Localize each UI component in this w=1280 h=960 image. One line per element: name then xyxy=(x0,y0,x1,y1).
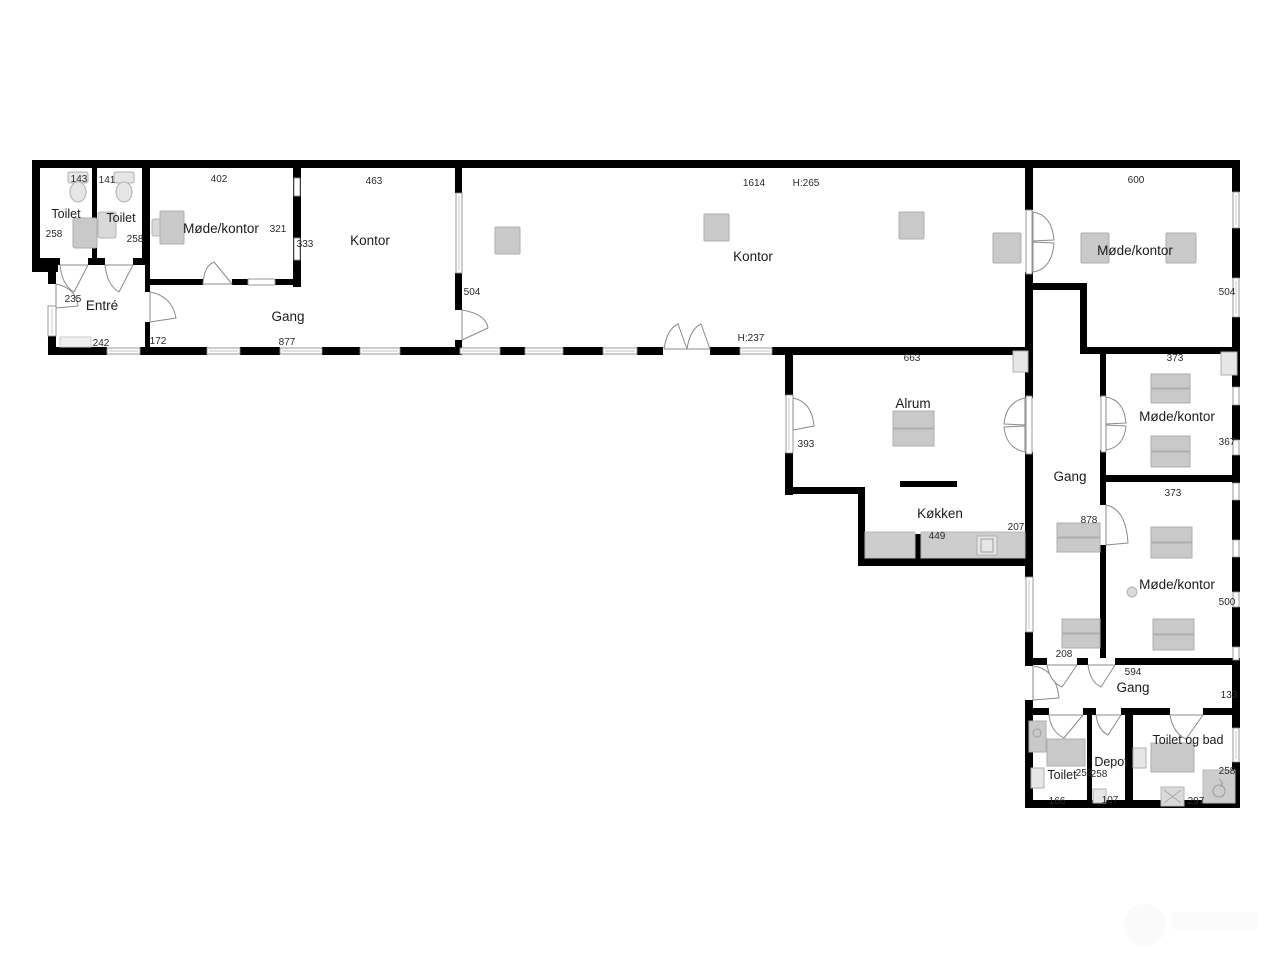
floor-drain xyxy=(1161,787,1184,806)
window xyxy=(1233,387,1239,405)
door-arc-alrum-gang-1 xyxy=(1004,398,1025,425)
door-arc-toilet-nw-right xyxy=(105,265,133,292)
room-label-kontor-west: Kontor xyxy=(350,233,390,248)
door-arc-kontor-divider xyxy=(462,310,488,340)
room-label-kontor-main: Kontor xyxy=(733,249,773,264)
door-arc-moede-nw xyxy=(203,262,232,284)
door-arc-ne-double-1 xyxy=(1033,212,1054,241)
dim-toilet-south-width: 166 xyxy=(1049,796,1066,807)
door-arc-kontor-south-2 xyxy=(687,324,710,349)
door-frame xyxy=(1026,210,1032,274)
conference-table xyxy=(1153,619,1194,650)
radiator xyxy=(1013,351,1028,372)
window xyxy=(740,348,772,354)
floor-plan-canvas: Toilet Toilet Entré Møde/kontor Kontor G… xyxy=(0,0,1280,960)
dim-toilet-og-bad-width: 297 xyxy=(1188,796,1205,807)
toilet-fixture xyxy=(114,172,134,202)
desk xyxy=(993,233,1021,263)
shower xyxy=(1029,721,1046,752)
dim-toilet-nw-left-depth: 258 xyxy=(46,229,63,240)
window xyxy=(786,395,793,453)
dim-kontor-main-ceiling: H:265 xyxy=(793,178,820,189)
conference-table xyxy=(1057,523,1100,552)
door-frame xyxy=(1026,396,1032,454)
furniture xyxy=(60,172,1237,806)
dim-entre-depth: 235 xyxy=(65,294,82,305)
desk xyxy=(495,227,520,254)
room-label-toilet-south: Toilet xyxy=(1047,768,1077,782)
floor-plan-svg: Toilet Toilet Entré Møde/kontor Kontor G… xyxy=(0,0,1280,960)
door-arc-room1-2 xyxy=(1106,425,1126,450)
dim-koekken-wall: 207 xyxy=(1008,522,1025,533)
door-arc-gang-south-2 xyxy=(1088,665,1115,687)
window xyxy=(1233,540,1239,557)
stool xyxy=(1127,587,1137,597)
window xyxy=(1233,728,1239,762)
door-arc-alrum-west xyxy=(793,398,814,430)
room-label-toilet-nw-right: Toilet xyxy=(106,211,136,225)
door-arc-ne-double-2 xyxy=(1033,242,1054,272)
door-arc-toilet-south xyxy=(1049,715,1083,738)
window xyxy=(280,348,322,354)
desk xyxy=(704,214,729,241)
room-label-koekken: Køkken xyxy=(917,506,963,521)
dim-moede-e2-wall: 500 xyxy=(1219,597,1236,608)
dim-gang-east-length: 878 xyxy=(1081,515,1098,526)
sink xyxy=(1047,739,1085,766)
door-arc-room2 xyxy=(1106,505,1128,545)
dim-alrum-width: 663 xyxy=(904,353,921,364)
dim-gang-south-width: 594 xyxy=(1125,667,1142,678)
kitchen-counter xyxy=(865,532,915,558)
dim-depot-depth: 258 xyxy=(1091,769,1108,780)
doormat xyxy=(60,337,91,347)
kitchen-sink xyxy=(977,536,997,555)
window xyxy=(1233,192,1239,228)
window xyxy=(456,193,462,273)
dim-kontor-west-width: 463 xyxy=(366,176,383,187)
dimension-labels: 143 258 141 258 235 242 402 321 333 463 … xyxy=(46,174,1238,807)
room-label-entre: Entré xyxy=(86,298,118,313)
conference-table xyxy=(1062,619,1100,648)
dim-kontor-west-wall: 504 xyxy=(464,287,481,298)
dim-gang-west-width: 877 xyxy=(279,337,296,348)
window xyxy=(460,348,500,354)
window xyxy=(248,279,275,285)
window xyxy=(1233,483,1239,500)
desk xyxy=(160,211,184,244)
dim-moede-ne-wall: 504 xyxy=(1219,287,1236,298)
dim-depot-width: 107 xyxy=(1102,795,1119,806)
room-label-alrum: Alrum xyxy=(895,396,930,411)
dim-gang-east-end: 208 xyxy=(1056,649,1073,660)
door-frame xyxy=(1101,396,1106,452)
dim-moede-nw-depth: 321 xyxy=(270,224,287,235)
dim-toilet-nw-left-width: 143 xyxy=(71,174,88,185)
room-label-gang-west: Gang xyxy=(271,309,304,324)
window xyxy=(603,348,637,354)
room-label-moede-e1: Møde/kontor xyxy=(1139,409,1215,424)
sink xyxy=(1151,743,1194,772)
door-arc-kontor-south-1 xyxy=(664,324,687,349)
dim-moede-e2-width: 373 xyxy=(1165,488,1182,499)
dim-gang-west-offset: 172 xyxy=(150,336,167,347)
window xyxy=(207,348,240,354)
dim-kontor-main-ceiling-s: H:237 xyxy=(738,333,765,344)
watermark xyxy=(1124,904,1258,946)
window xyxy=(107,348,140,354)
dim-moede-e1-width: 373 xyxy=(1167,353,1184,364)
dim-moede-e1-wall: 367 xyxy=(1219,437,1236,448)
dim-alrum-wall: 393 xyxy=(798,439,815,450)
walls xyxy=(32,160,1240,808)
door-arc-depot xyxy=(1096,715,1121,735)
dim-entre-width: 242 xyxy=(93,338,110,349)
window xyxy=(1026,577,1033,632)
window xyxy=(360,348,400,354)
dim-toilet-og-bad-depth: 258 xyxy=(1219,766,1236,777)
window xyxy=(525,348,563,354)
window xyxy=(1233,647,1239,660)
room-label-toilet-nw-left: Toilet xyxy=(51,207,81,221)
window xyxy=(294,178,300,196)
conference-table xyxy=(1151,374,1190,403)
room-label-moede-ne: Møde/kontor xyxy=(1097,243,1173,258)
radiator xyxy=(1221,352,1237,375)
dim-toilet-nw-right-depth: 258 xyxy=(127,234,144,245)
dim-moede-nw-width: 402 xyxy=(211,174,228,185)
dim-toilet-nw-right-width: 141 xyxy=(99,175,116,186)
desk xyxy=(899,212,924,239)
door-arc-room1-1 xyxy=(1106,397,1126,424)
dim-moede-ne-width: 600 xyxy=(1128,175,1145,186)
room-label-gang-east: Gang xyxy=(1053,469,1086,484)
dim-kontor-main-width: 1614 xyxy=(743,178,766,189)
room-label-gang-south: Gang xyxy=(1116,680,1149,695)
room-label-toilet-og-bad: Toilet og bad xyxy=(1153,733,1224,747)
sink xyxy=(73,218,97,248)
room-label-moede-e2: Møde/kontor xyxy=(1139,577,1215,592)
conference-table xyxy=(893,411,934,446)
toilet-fixture xyxy=(1133,748,1146,768)
conference-table xyxy=(1151,436,1190,467)
room-label-depot: Depot xyxy=(1094,755,1128,769)
dim-moede-nw-wall: 333 xyxy=(297,239,314,250)
conference-table xyxy=(1151,527,1192,558)
door-arc-entre-gang xyxy=(150,292,176,322)
room-label-moede-nw: Møde/kontor xyxy=(183,221,259,236)
window xyxy=(48,306,56,336)
toilet-fixture xyxy=(1031,768,1044,788)
door-arc-alrum-gang-2 xyxy=(1004,426,1025,452)
dim-gang-south-wall: 133 xyxy=(1221,690,1238,701)
dim-koekken-width: 449 xyxy=(929,531,946,542)
